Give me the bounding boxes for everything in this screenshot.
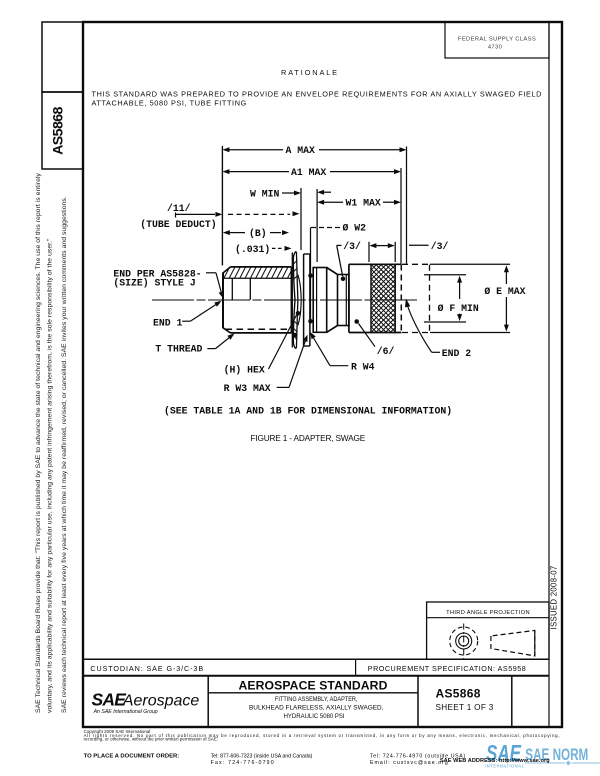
svg-text:FIGURE 1 - ADAPTER, SWAGE: FIGURE 1 - ADAPTER, SWAGE [251,433,366,443]
svg-text:(TUBE DEDUCT): (TUBE DEDUCT) [140,219,216,230]
svg-text:END 2: END 2 [442,348,472,359]
svg-text:SAE reviews each technical rep: SAE reviews each technical report at lea… [61,196,68,713]
svg-text:AEROSPACE STANDARD: AEROSPACE STANDARD [239,678,388,692]
svg-text:voluntary, and its applicabili: voluntary, and its applicability and sui… [46,238,53,713]
svg-text:R W3 MAX: R W3 MAX [224,383,271,394]
svg-text:Fax: 724-776-0790: Fax: 724-776-0790 [211,760,275,766]
svg-text:(.031): (.031) [235,244,270,255]
svg-text:AS5868: AS5868 [436,687,481,701]
svg-text:(SIZE) STYLE J: (SIZE) STYLE J [113,277,195,288]
svg-text:SAE WEB ADDRESS: http://www.sa: SAE WEB ADDRESS: http://www.sae.org [440,758,550,764]
svg-text:THIRD ANGLE PROJECTION: THIRD ANGLE PROJECTION [446,610,530,616]
svg-text:ATTACHABLE, 5080 PSI, TUBE FIT: ATTACHABLE, 5080 PSI, TUBE FITTING [92,99,247,108]
svg-text:(SEE TABLE 1A AND 1B FOR DIMEN: (SEE TABLE 1A AND 1B FOR DIMENSIONAL INF… [164,406,452,417]
svg-text:INTERNATIONAL: INTERNATIONAL [485,764,524,769]
svg-text:/11/: /11/ [167,203,191,214]
svg-text:Aerospace: Aerospace [122,693,200,710]
svg-text:(H) HEX: (H) HEX [224,365,265,376]
svg-text:END 1: END 1 [153,318,183,329]
svg-text:Email: custsvc@sae.org: Email: custsvc@sae.org [370,760,449,766]
svg-text:/3/: /3/ [343,241,361,252]
svg-text:A1 MAX: A1 MAX [291,167,326,178]
svg-text:W1 MAX: W1 MAX [346,197,381,208]
svg-text:R W4: R W4 [351,361,375,372]
svg-text:/3/: /3/ [431,241,449,252]
svg-text:PROCUREMENT SPECIFICATION: AS5: PROCUREMENT SPECIFICATION: AS5958 [368,664,526,673]
svg-text:Ø F MIN: Ø F MIN [438,303,479,314]
svg-text:FITTING ASSEMBLY, ADAPTER,: FITTING ASSEMBLY, ADAPTER, [275,696,358,703]
svg-text:4730: 4730 [488,45,502,51]
svg-text:FEDERAL SUPPLY CLASS: FEDERAL SUPPLY CLASS [458,37,536,43]
svg-text:W MIN: W MIN [250,189,280,200]
svg-text:A MAX: A MAX [286,145,316,156]
svg-text:HYDRAULIC 5080 PSI: HYDRAULIC 5080 PSI [284,713,345,720]
svg-text:ISSUED 2008-07: ISSUED 2008-07 [550,565,559,629]
svg-text:Tel: 877-606-7323 (inside USA: Tel: 877-606-7323 (inside USA and Canada… [211,753,313,759]
svg-text:SHEET 1 OF 3: SHEET 1 OF 3 [436,703,494,712]
svg-text:TO PLACE A DOCUMENT ORDER:: TO PLACE A DOCUMENT ORDER: [84,753,180,759]
svg-text:SAE Technical Standards Board: SAE Technical Standards Board Rules prov… [35,172,42,713]
svg-text:RATIONALE: RATIONALE [281,68,339,77]
svg-text:Ø E MAX: Ø E MAX [484,286,525,297]
svg-text:CUSTODIAN: SAE G-3/C-3B: CUSTODIAN: SAE G-3/C-3B [90,664,204,673]
svg-text:AS5868: AS5868 [51,106,67,154]
svg-text:/6/: /6/ [377,346,395,357]
svg-text:THIS STANDARD WAS PREPARED TO: THIS STANDARD WAS PREPARED TO PROVIDE AN… [92,90,543,99]
svg-text:BULKHEAD FLARELESS, AXIALLY SW: BULKHEAD FLARELESS, AXIALLY SWAGED, [249,705,384,712]
svg-text:recording, or otherwise, witho: recording, or otherwise, without the pri… [84,737,219,742]
svg-text:Ø W2: Ø W2 [343,223,367,234]
svg-text:T THREAD: T THREAD [155,344,202,355]
svg-text:An SAE International Group: An SAE International Group [93,709,158,715]
svg-text:(B): (B) [249,228,267,239]
